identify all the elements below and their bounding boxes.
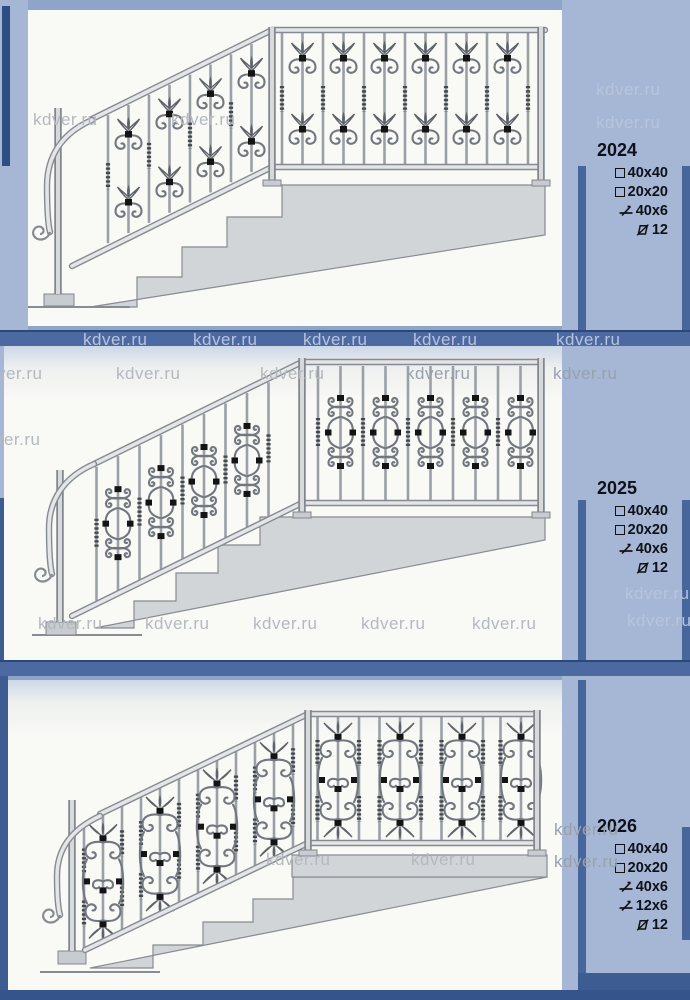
- round-bar-icon: [636, 223, 650, 236]
- spec-row: 40x40: [572, 501, 668, 520]
- spec-size-label: 20x20: [628, 860, 668, 876]
- spec-row: 40x6: [572, 877, 668, 896]
- spec-row: 12: [572, 220, 668, 239]
- spec-row: 12: [572, 558, 668, 577]
- product-code: 2024: [572, 140, 662, 161]
- spec-row: 40x6: [572, 201, 668, 220]
- sidebar3-bottom-band: [578, 973, 690, 990]
- spec-size-label: 20x20: [628, 522, 668, 538]
- spec-size-label: 40x6: [636, 541, 668, 557]
- spec-size-label: 12: [652, 222, 668, 238]
- spec-size-label: 40x40: [628, 841, 668, 857]
- spec-rows: 40x4020x2040x612: [572, 163, 668, 239]
- square-bar-icon: [615, 187, 625, 197]
- sidebar2-bar-right: [682, 500, 690, 660]
- round-bar-icon: [636, 561, 650, 574]
- panel-divider-2: [0, 660, 690, 676]
- drawing-area-2026: [8, 680, 562, 990]
- sidebar3-bar-right: [682, 827, 690, 940]
- spec-block-2025: 2025 40x4020x2040x612: [572, 478, 668, 577]
- spec-size-label: 12: [652, 560, 668, 576]
- panel-divider-1: [0, 330, 690, 346]
- spec-row: 40x40: [572, 163, 668, 182]
- spec-row: 20x20: [572, 858, 668, 877]
- stair-railing-drawing-2025: [4, 346, 562, 660]
- spec-size-label: 40x6: [636, 203, 668, 219]
- flat-bar-icon: [619, 204, 634, 217]
- drawing-area-2025: [4, 346, 562, 660]
- spec-row: 40x40: [572, 839, 668, 858]
- spec-row: 40x6: [572, 539, 668, 558]
- left-accent-bar-panel1: [2, 6, 10, 166]
- drawing-area-2024: [28, 10, 562, 326]
- spec-size-label: 20x20: [628, 184, 668, 200]
- spec-size-label: 12x6: [636, 898, 668, 914]
- flat-bar-icon: [619, 880, 634, 893]
- square-bar-icon: [615, 844, 625, 854]
- round-bar-icon: [636, 918, 650, 931]
- sidebar1-bar-right: [682, 166, 690, 330]
- square-bar-icon: [615, 863, 625, 873]
- spec-row: 12: [572, 915, 668, 934]
- stair-railing-drawing-2026: [8, 680, 562, 990]
- spec-row: 20x20: [572, 182, 668, 201]
- flat-bar-icon: [619, 542, 634, 555]
- spec-block-2024: 2024 40x4020x2040x612: [572, 140, 668, 239]
- square-bar-icon: [615, 168, 625, 178]
- spec-block-2026: 2026 40x4020x2040x612x612: [572, 816, 668, 934]
- spec-rows: 40x4020x2040x612x612: [572, 839, 668, 934]
- spec-size-label: 40x6: [636, 879, 668, 895]
- product-code: 2025: [572, 478, 662, 499]
- spec-size-label: 40x40: [628, 503, 668, 519]
- stair-railing-drawing-2024: [28, 10, 562, 326]
- page-bottom-band: [0, 990, 690, 1000]
- spec-row: 12x6: [572, 896, 668, 915]
- square-bar-icon: [615, 525, 625, 535]
- square-bar-icon: [615, 506, 625, 516]
- spec-size-label: 12: [652, 917, 668, 933]
- spec-size-label: 40x40: [628, 165, 668, 181]
- product-code: 2026: [572, 816, 662, 837]
- spec-row: 20x20: [572, 520, 668, 539]
- left-accent-bar-panel3: [0, 676, 8, 990]
- catalog-page: 2024 40x4020x2040x612 2025 40x4020x2040x…: [0, 0, 690, 1000]
- spec-rows: 40x4020x2040x612: [572, 501, 668, 577]
- flat-bar-icon: [619, 899, 634, 912]
